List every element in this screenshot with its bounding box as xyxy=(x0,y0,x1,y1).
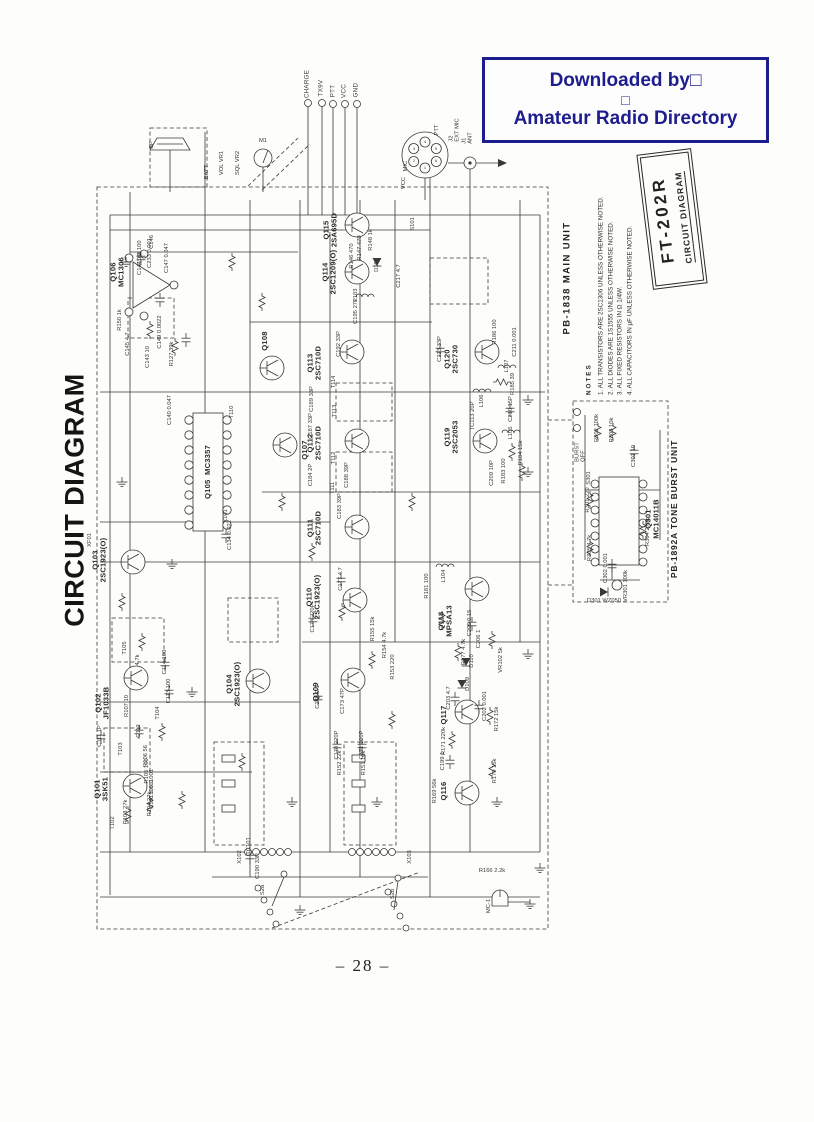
component-label: R107 10 xyxy=(124,695,130,717)
component-label: D301 WZ050 xyxy=(587,598,621,604)
semiconductor-label: Q120 2SC730 xyxy=(444,345,461,374)
component-label: C134 0.022 xyxy=(227,520,233,550)
component-label: R170 15k xyxy=(492,759,498,784)
component-label: R150 1k xyxy=(117,309,123,331)
component-label: C206 1 xyxy=(476,630,482,649)
component-label: R151 10k xyxy=(361,751,367,776)
component-label: T111 xyxy=(330,482,336,494)
component-label: T114 xyxy=(331,376,337,389)
component-label: BURST OFF xyxy=(575,442,588,462)
component-label: C192 33P xyxy=(336,331,342,357)
component-label: C190 33P xyxy=(255,853,261,879)
watermark-line-1: Downloaded by□ xyxy=(550,70,702,92)
component-label: D107 xyxy=(374,258,380,272)
component-label: C173 47P xyxy=(340,688,346,714)
component-label: C217 4.7 xyxy=(396,264,402,288)
component-label: C113 100 xyxy=(166,679,172,704)
terminal-label: VCC xyxy=(342,84,349,98)
semiconductor-label: Q115 2SA695D xyxy=(323,213,340,247)
component-label: T104 xyxy=(155,706,161,719)
component-label: R104 27k xyxy=(147,792,153,817)
semiconductor-label: Q106 MC1306 xyxy=(110,257,127,287)
component-label: J2 EXT MIC xyxy=(449,118,462,141)
component-label: L104 xyxy=(441,570,447,583)
component-label: L106 xyxy=(479,395,485,408)
component-label: C172 0.1 xyxy=(315,685,321,709)
component-label: X102 xyxy=(237,850,243,864)
semiconductor-label: Q111 2SC710D xyxy=(307,511,324,545)
component-label: C209 10P xyxy=(489,460,495,486)
component-label: 4.7k xyxy=(135,655,141,666)
component-label: T105 xyxy=(122,641,128,654)
component-label: C174 220P xyxy=(310,603,316,632)
component-label: C188 39P xyxy=(344,462,350,488)
component-label: C183 39P xyxy=(337,493,343,519)
semiconductor-label: Q108 xyxy=(261,331,269,350)
component-label: R301 220 xyxy=(585,487,591,512)
component-label: R304 270k xyxy=(645,518,651,546)
semiconductor-label: Q116 xyxy=(440,782,448,801)
component-label: C195 27P xyxy=(353,298,359,324)
component-label: TC113 20P xyxy=(470,402,476,431)
component-label: R146 470 xyxy=(349,243,355,268)
component-label: S2a xyxy=(260,885,266,895)
component-label: C144 10 xyxy=(137,253,143,275)
component-label: C205 0.15 xyxy=(467,610,473,637)
component-label: C145 4.7 xyxy=(125,332,131,356)
semiconductor-label: Q113 2SC710D xyxy=(307,346,324,380)
component-label: D110 xyxy=(469,654,475,667)
component-label: R303 10k xyxy=(609,418,615,443)
component-label: R172 15k xyxy=(494,707,500,732)
semiconductor-label: Q101 3SK51 xyxy=(94,777,111,801)
component-label: C112 xyxy=(136,724,142,737)
component-label: C147 0.047 xyxy=(164,243,170,273)
watermark-line-3: Amateur Radio Directory xyxy=(514,108,738,130)
component-label: L107 xyxy=(504,360,510,373)
component-label: R154 4.7k xyxy=(382,632,388,658)
component-label: R155 15k xyxy=(370,617,376,642)
component-label: C301 10 xyxy=(631,445,637,467)
semiconductor-label: Q102 JF1033B xyxy=(95,687,112,720)
component-label: R186 100 xyxy=(492,319,498,344)
component-label: S301 xyxy=(586,471,592,485)
component-label: C189 33P xyxy=(309,386,315,412)
component-label: 6 xyxy=(435,159,437,163)
component-label: C187 33P xyxy=(308,413,314,439)
component-label: SQL VR2 xyxy=(235,151,241,175)
component-label: PTT xyxy=(434,125,440,136)
terminal-label: CHARGE xyxy=(305,70,312,98)
component-label: C149 0.0022 xyxy=(157,315,163,348)
component-label: R169 56k xyxy=(432,779,438,804)
scanned-schematic-page: CIRCUIT DIAGRAM FT-202R CIRCUIT DIAGRAM … xyxy=(0,0,814,1122)
component-label: MIC xyxy=(403,161,409,172)
component-label: C302 0.001 xyxy=(603,553,609,583)
component-label: 3 xyxy=(413,147,415,151)
component-label: C203 4.7 xyxy=(446,686,452,710)
component-label: C146 xyxy=(149,235,155,249)
component-label: 2 xyxy=(413,159,415,163)
component-label: XF01 xyxy=(87,533,93,547)
component-label: 5 xyxy=(435,147,437,151)
semiconductor-label: Q105 MC3357 xyxy=(204,445,212,499)
component-label: VR102 5k xyxy=(498,647,504,672)
component-label: C211 0.001 xyxy=(512,327,518,357)
component-label: C114 100 xyxy=(162,650,168,675)
component-label: R305 4.7k xyxy=(587,535,593,561)
component-label: R148 1k xyxy=(368,229,374,251)
component-label: R183 100 xyxy=(501,458,507,483)
component-label: VOL VR1 xyxy=(219,151,225,175)
terminal-label: PTT xyxy=(331,85,338,98)
component-labels-layer: CHARGETX9VPTTVCCGNDQ101 3SK51Q102 JF1033… xyxy=(0,0,814,1122)
component-label: R127 39k xyxy=(169,342,175,367)
component-label: VCC xyxy=(401,177,407,189)
component-label: S101 xyxy=(410,217,416,231)
component-label: 4 xyxy=(424,140,426,144)
component-label: C177 4.7 xyxy=(338,567,344,591)
semiconductor-label: Q103 2SC1923(O) xyxy=(92,538,109,583)
component-label: R181 100 xyxy=(424,573,430,598)
semiconductor-label: Q119 2SC2053 xyxy=(444,420,461,453)
component-label: MC-1 xyxy=(486,899,492,913)
component-label: T110 xyxy=(229,406,235,419)
watermark-box: Downloaded by□ □ Amateur Radio Directory xyxy=(482,57,769,143)
watermark-line-2: □ xyxy=(621,92,629,108)
semiconductor-label: Q118 MPSA13 xyxy=(438,605,455,637)
component-label: J1 ANT xyxy=(462,132,475,144)
semiconductor-label: Q114 2SC1209(O) xyxy=(322,250,339,295)
component-label: C140 0.047 xyxy=(167,395,173,425)
component-label: SP xyxy=(149,141,155,149)
component-label: D109 xyxy=(465,677,471,691)
component-label: VR301 100k xyxy=(623,570,629,602)
component-label: C143 10 xyxy=(145,346,151,368)
component-label: X103 xyxy=(407,850,413,864)
component-label: C111 1P xyxy=(97,725,103,747)
component-label: T102 xyxy=(110,816,116,829)
component-label: R177 4.7k xyxy=(461,639,467,665)
component-label: BATT xyxy=(204,165,210,179)
component-label: C184 2P xyxy=(308,464,314,487)
component-label: C202 0.001 xyxy=(482,691,488,721)
component-label: R302 100k xyxy=(594,414,600,442)
component-label: TC101 xyxy=(246,837,252,854)
component-label: R166 2.2k xyxy=(479,868,505,874)
component-label: C199 1 xyxy=(440,752,446,771)
component-label: T113 xyxy=(332,405,338,418)
component-label: R147 470 xyxy=(357,235,363,260)
component-label: S2b xyxy=(390,889,396,899)
component-label: R184 15k xyxy=(518,441,524,466)
semiconductor-label: Q104 2SC1923(O) xyxy=(226,662,243,707)
component-label: T112 xyxy=(331,452,337,465)
component-label: 1 xyxy=(424,166,426,170)
component-label: R185 39 xyxy=(510,373,516,395)
component-label: C213 33P xyxy=(437,336,443,362)
terminal-label: GND xyxy=(354,83,361,98)
component-label: R153 220 xyxy=(390,654,396,679)
component-label: R152 22k xyxy=(337,751,343,776)
component-label: T103 xyxy=(118,742,124,755)
component-label: R103 27k xyxy=(123,800,129,825)
page-number: – 28 – xyxy=(336,956,391,976)
component-label: M1 xyxy=(259,138,267,144)
component-label: L105 xyxy=(508,427,514,440)
component-label: C210 15P xyxy=(508,396,514,422)
terminal-label: TX9V xyxy=(319,80,326,97)
